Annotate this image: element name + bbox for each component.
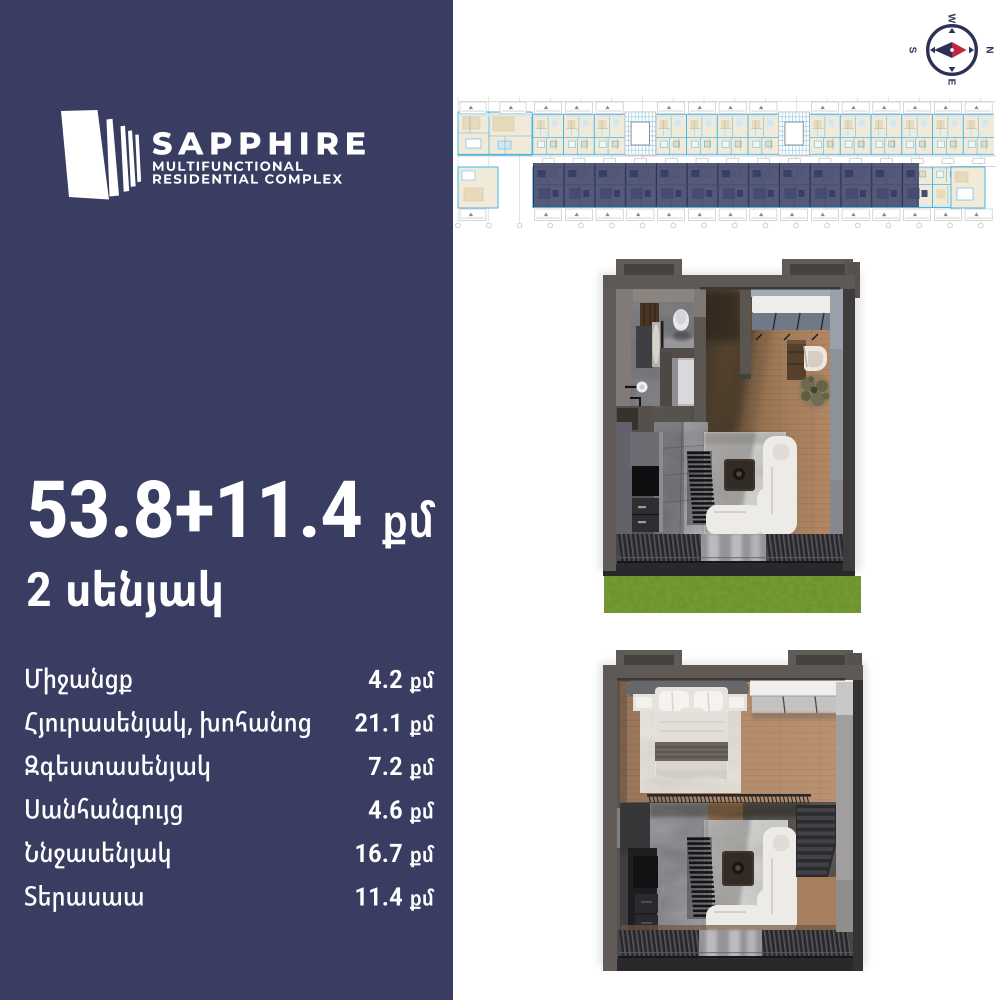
svg-text:E: E [946, 79, 957, 86]
svg-text:S: S [907, 47, 918, 54]
svg-text:W: W [946, 14, 957, 24]
svg-text:N: N [984, 46, 995, 53]
